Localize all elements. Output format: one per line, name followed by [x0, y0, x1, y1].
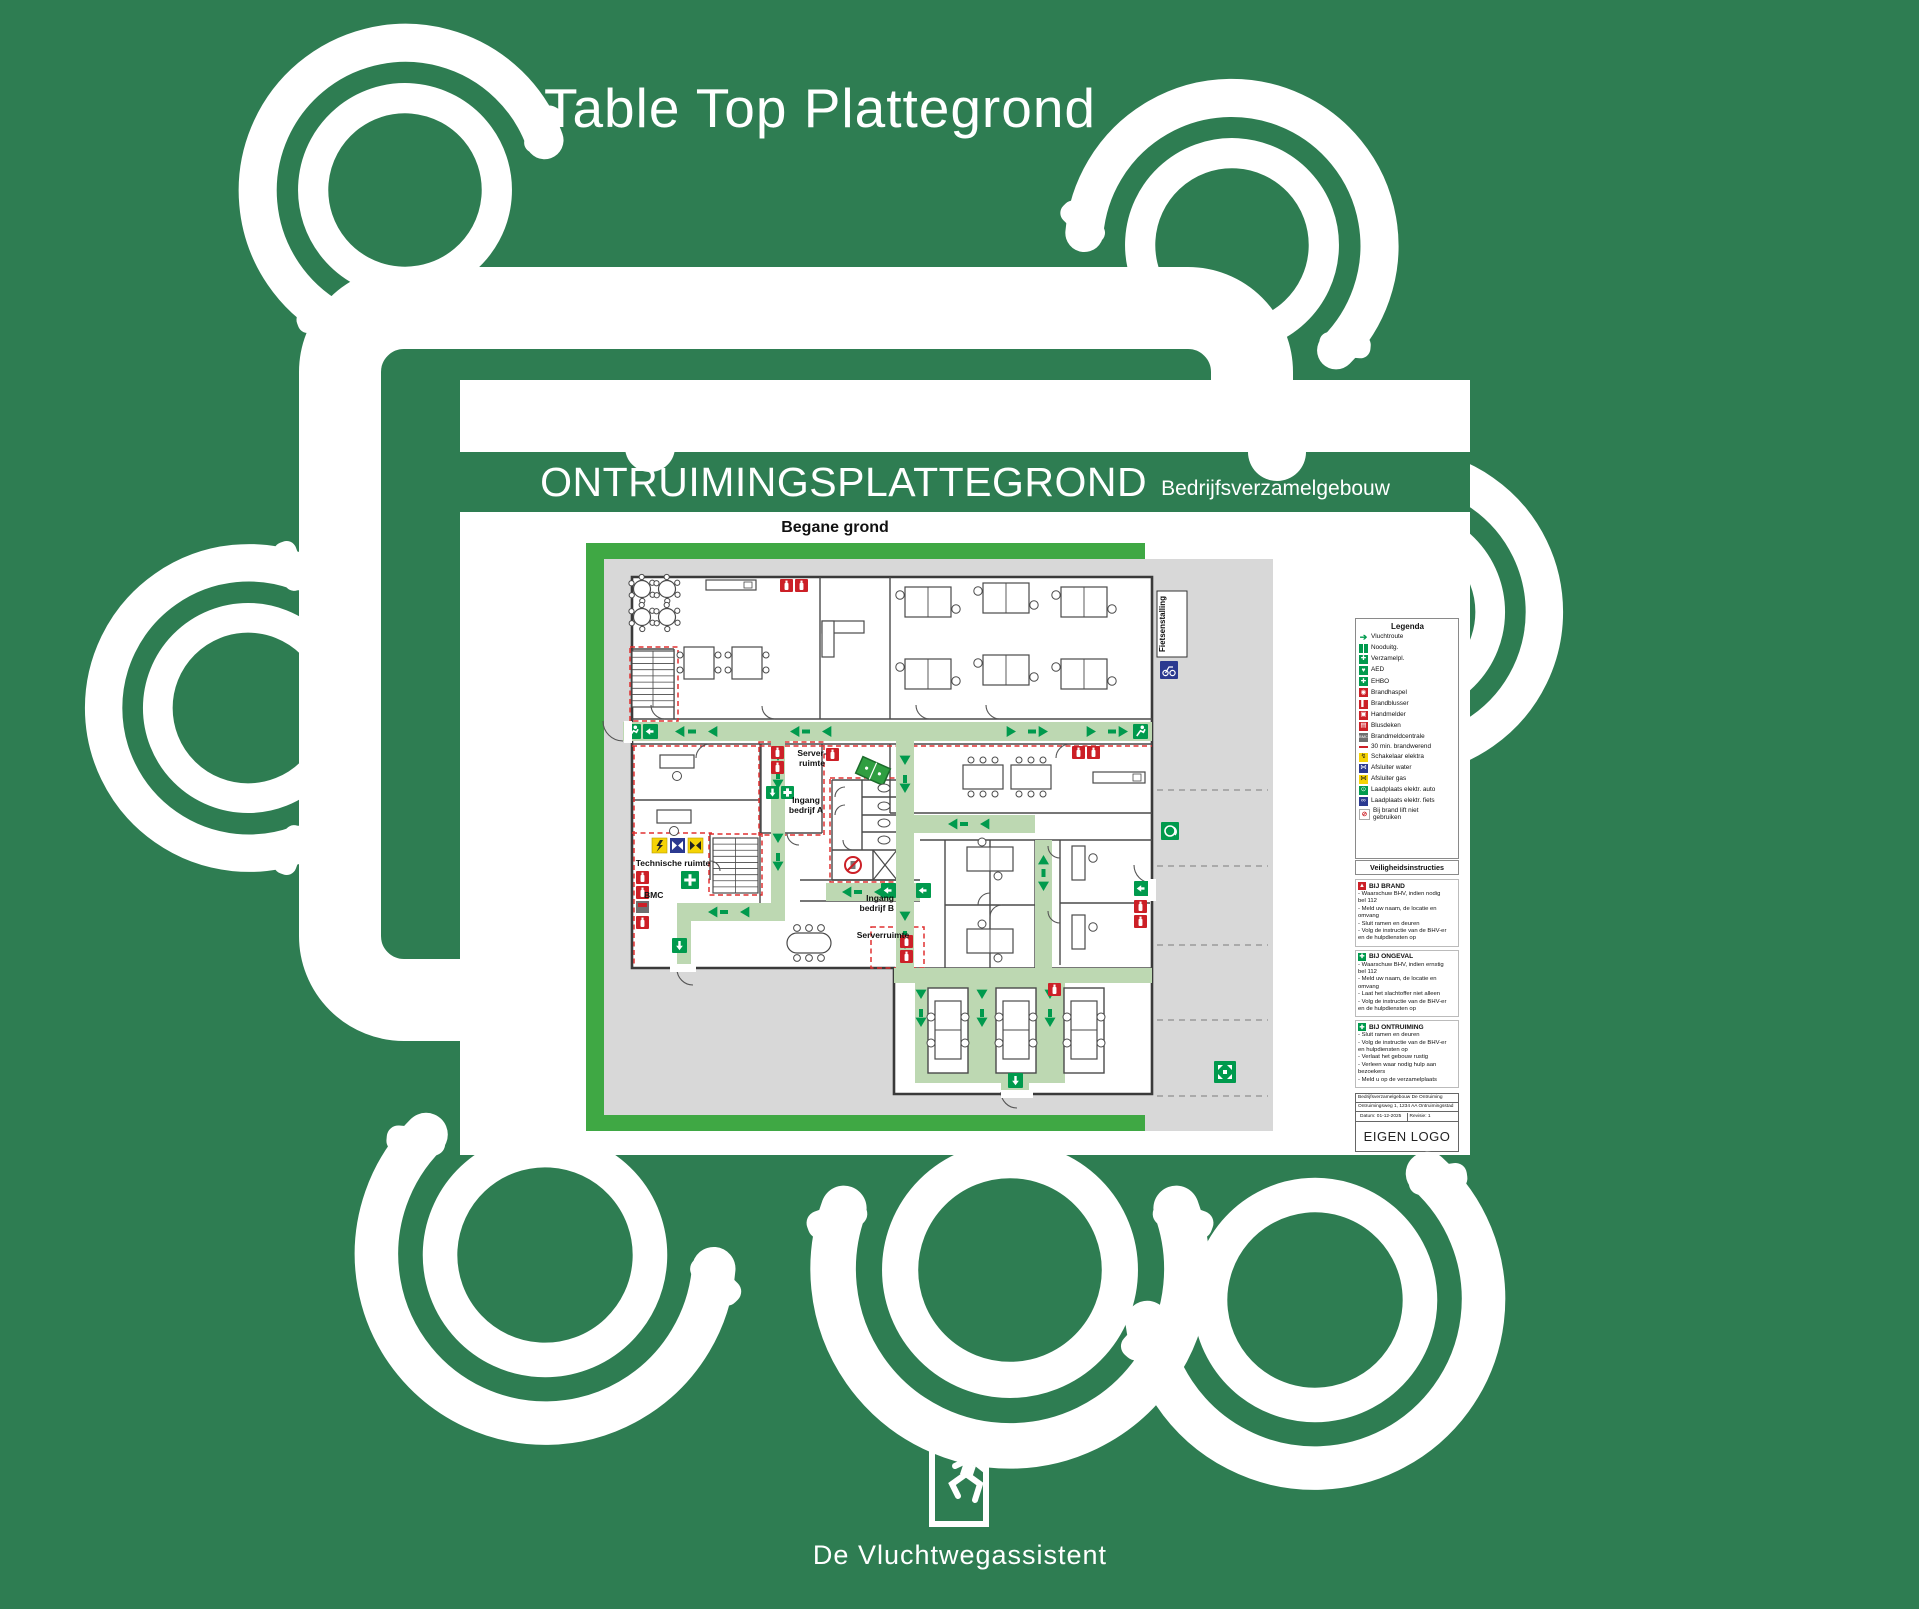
client-logo-placeholder: EIGEN LOGO [1355, 1121, 1459, 1152]
label-bmc: BMC [644, 891, 678, 901]
label-bike-shed: Fietsenstalling [1158, 594, 1184, 654]
square-table [732, 647, 762, 679]
water-valve-icon: ⋈ [1359, 764, 1368, 773]
instruction-section-accident: ✚ BIJ ONGEVAL - Waarschuw BHV, indien er… [1355, 950, 1459, 1018]
fire-blanket-icon: ▤ [1359, 722, 1368, 731]
round-table [634, 581, 651, 598]
oval-table [787, 933, 831, 953]
meeting-table [1011, 765, 1051, 789]
escape-route-arrow-icon: ➔ [1359, 633, 1368, 642]
label-entrance-b: Ingang bedrijf B [824, 894, 894, 914]
electric-switch-icon: ↯ [1359, 753, 1368, 762]
instruction-section-fire: ▲ BIJ BRAND - Waarschuw BHV, indien nodi… [1355, 879, 1459, 947]
manual-call-point-icon: ▣ [1359, 711, 1368, 720]
round-table [634, 609, 651, 626]
first-aid-icon: ✚ [1359, 677, 1368, 686]
ev-charger-bike-icon: ∞ [1359, 797, 1368, 806]
fire-resistant-line-icon [1359, 746, 1368, 748]
plan-subtitle: Bedrijfsverzamelgebouw [1161, 477, 1390, 501]
title-block-revision: Revisie: 1 [1408, 1113, 1457, 1121]
title-block-address: Ontruimingsweg 1, 1234 AA Ontruimingssta… [1356, 1103, 1458, 1112]
fire-icon: ▲ [1358, 882, 1366, 890]
counter [706, 580, 756, 590]
round-table [659, 581, 676, 598]
toilet [878, 819, 890, 827]
label-entrance-a: Ingang bedrijf A [770, 796, 842, 816]
title-block-date: Datum: 01-12-2025 [1358, 1113, 1408, 1121]
door-opening [624, 721, 632, 743]
floor-label: Begane grond [595, 519, 1075, 537]
fire-hose-icon: ◉ [1359, 688, 1368, 697]
label-server-room-bottom: Serverruimte [844, 931, 922, 941]
square-table [684, 647, 714, 679]
desk [660, 755, 694, 768]
meeting-table [963, 765, 1003, 789]
desk [1072, 915, 1085, 949]
round-table [659, 609, 676, 626]
label-server-room-top: Server- ruimte [782, 749, 842, 769]
toilet [878, 836, 890, 844]
first-aid-icon: ✚ [1358, 953, 1366, 961]
page: { "page": { "background_color": "#2e7d52… [0, 0, 1919, 1609]
plan-title: ONTRUIMINGSPLATTEGROND [540, 459, 1147, 506]
door-opening [1148, 879, 1156, 901]
page-title: Table Top Plattegrond [460, 76, 1180, 140]
gas-valve-icon: ⋈ [1359, 775, 1368, 784]
legend-title: Legenda [1359, 622, 1456, 631]
legend-panel: Legenda ➔Vluchtroute Nooduitg. ✚Verzamel… [1355, 618, 1459, 859]
no-lift-icon: ⊘ [1359, 809, 1370, 820]
ev-charger-bike-icon [1160, 661, 1178, 679]
desk [1072, 846, 1085, 880]
assembly-point-icon: ✚ [1359, 655, 1368, 664]
fire-alarm-panel-icon: BMC [1359, 733, 1368, 742]
safety-instructions-panel: Veiligheidsinstructies ▲ BIJ BRAND - Waa… [1355, 860, 1459, 1091]
instruction-section-evacuation: ✚ BIJ ONTRUIMING - Sluit ramen en deuren… [1355, 1020, 1459, 1088]
desk [657, 810, 691, 823]
fire-extinguisher-icon: ▌ [1359, 700, 1368, 709]
instructions-title: Veiligheidsinstructies [1355, 860, 1459, 875]
aed-icon: ♥ [1359, 666, 1368, 675]
footer-brand: De Vluchtwegassistent [660, 1540, 1260, 1571]
door-opening [670, 964, 696, 972]
assembly-point-icon: ✚ [1358, 1023, 1366, 1031]
exit-runner-icon [928, 1432, 1006, 1528]
toilet [878, 784, 890, 792]
plan-header: ONTRUIMINGSPLATTEGROND Bedrijfsverzamelg… [460, 452, 1470, 512]
label-technical-room: Technische ruimte [632, 859, 714, 869]
evacuation-plan-document: ONTRUIMINGSPLATTEGROND Bedrijfsverzamelg… [460, 380, 1470, 1155]
floor-plan [460, 543, 1470, 1155]
ev-charger-car-icon: ⊙ [1359, 786, 1368, 795]
emergency-exit-icon [1359, 644, 1368, 653]
toilet [878, 802, 890, 810]
title-block-building: Bedrijfsverzamelgebouw De Ontruiming [1356, 1094, 1458, 1103]
door-opening [1001, 1090, 1033, 1098]
floor-plan-drawing [460, 543, 1470, 1155]
